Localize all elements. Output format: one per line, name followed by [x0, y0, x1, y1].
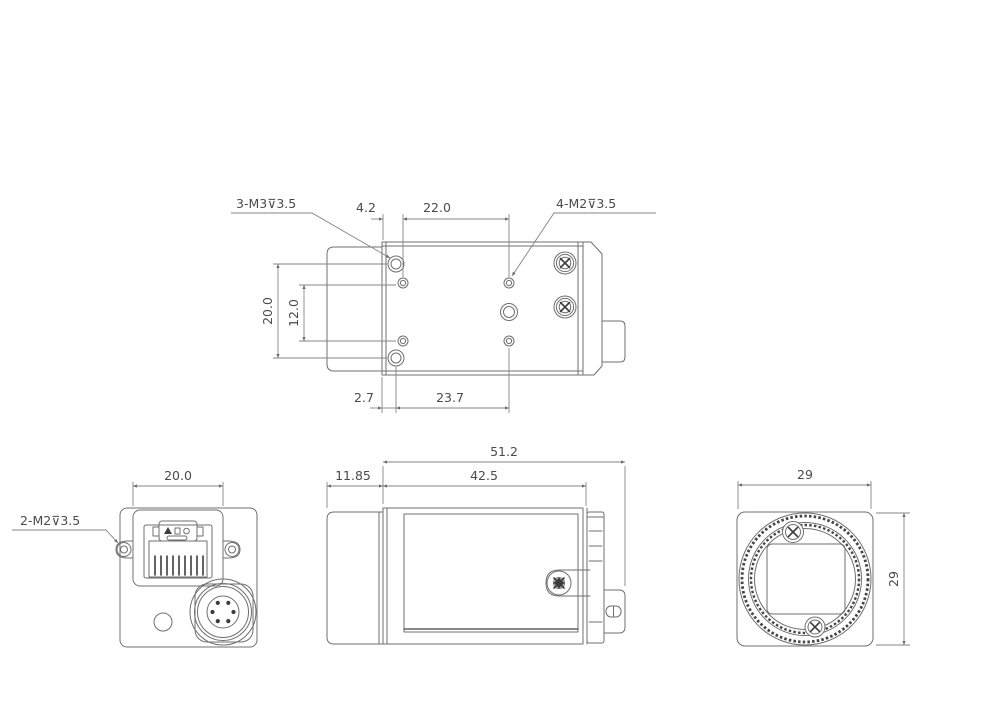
dim-29-width: 29: [797, 467, 813, 482]
dim-22-0: 22.0: [423, 200, 451, 215]
dim-4-2: 4.2: [356, 200, 376, 215]
phillips-screws: [554, 252, 576, 318]
top-view: 3-M3⊽3.5 4-M2⊽3.5 4.2 22.0 20.0 12.0: [231, 196, 656, 413]
technical-drawing-page: 3-M3⊽3.5 4-M2⊽3.5 4.2 22.0 20.0 12.0: [0, 0, 1000, 707]
thread-label-m2: 4-M2⊽3.5: [556, 196, 616, 211]
front-view: 29 29: [737, 467, 910, 646]
m2-holes: [398, 278, 514, 346]
dim-23-7: 23.7: [436, 390, 464, 405]
dim-42-5: 42.5: [470, 468, 498, 483]
rear-view: 20.0 2-M2⊽3.5: [12, 468, 257, 647]
side-dimensions: 51.2 11.85 42.5: [327, 444, 625, 586]
side-rear-connector: [604, 590, 625, 633]
rj45-mark-triangle: [164, 527, 172, 534]
top-lens-step: [327, 247, 382, 371]
top-body-outline: [382, 242, 583, 375]
sensor-window: [767, 544, 845, 614]
leader-m3: [231, 213, 390, 258]
dim-rear-20-0: 20.0: [164, 468, 192, 483]
rear-dimension: 20.0: [133, 468, 223, 506]
dim-29-height: 29: [886, 571, 901, 587]
thread-label-m3: 3-M3⊽3.5: [236, 196, 296, 211]
dim-12-0: 12.0: [286, 299, 301, 327]
leader-2m2: [12, 530, 118, 543]
leader-m2: [512, 213, 656, 276]
dim-20-0-top: 20.0: [260, 297, 275, 325]
top-rear-cap: [583, 242, 602, 375]
rj45-pins: [155, 556, 203, 575]
rear-mount-screws: [116, 541, 240, 558]
side-view: 51.2 11.85 42.5: [327, 444, 625, 644]
front-screws: [783, 522, 826, 638]
dim-51-2: 51.2: [490, 444, 518, 459]
m3-holes: [388, 256, 518, 366]
thread-label-2m2: 2-M2⊽3.5: [20, 513, 80, 528]
dim-2-7: 2.7: [354, 390, 374, 405]
side-body-outline: [383, 508, 583, 644]
led-indicator-hole: [154, 613, 172, 631]
left-dimensions: 20.0 12.0: [260, 264, 396, 358]
camera-dimension-drawing: 3-M3⊽3.5 4-M2⊽3.5 4.2 22.0 20.0 12.0: [0, 0, 1000, 707]
dim-11-85: 11.85: [335, 468, 371, 483]
top-rear-connector: [602, 321, 625, 362]
side-rear-cap: [587, 508, 604, 644]
power-io-connector: [190, 579, 256, 645]
rj45-jack: [149, 521, 207, 577]
side-lens-barrel: [327, 512, 383, 644]
top-dimensions: 4.2 22.0: [356, 200, 509, 277]
